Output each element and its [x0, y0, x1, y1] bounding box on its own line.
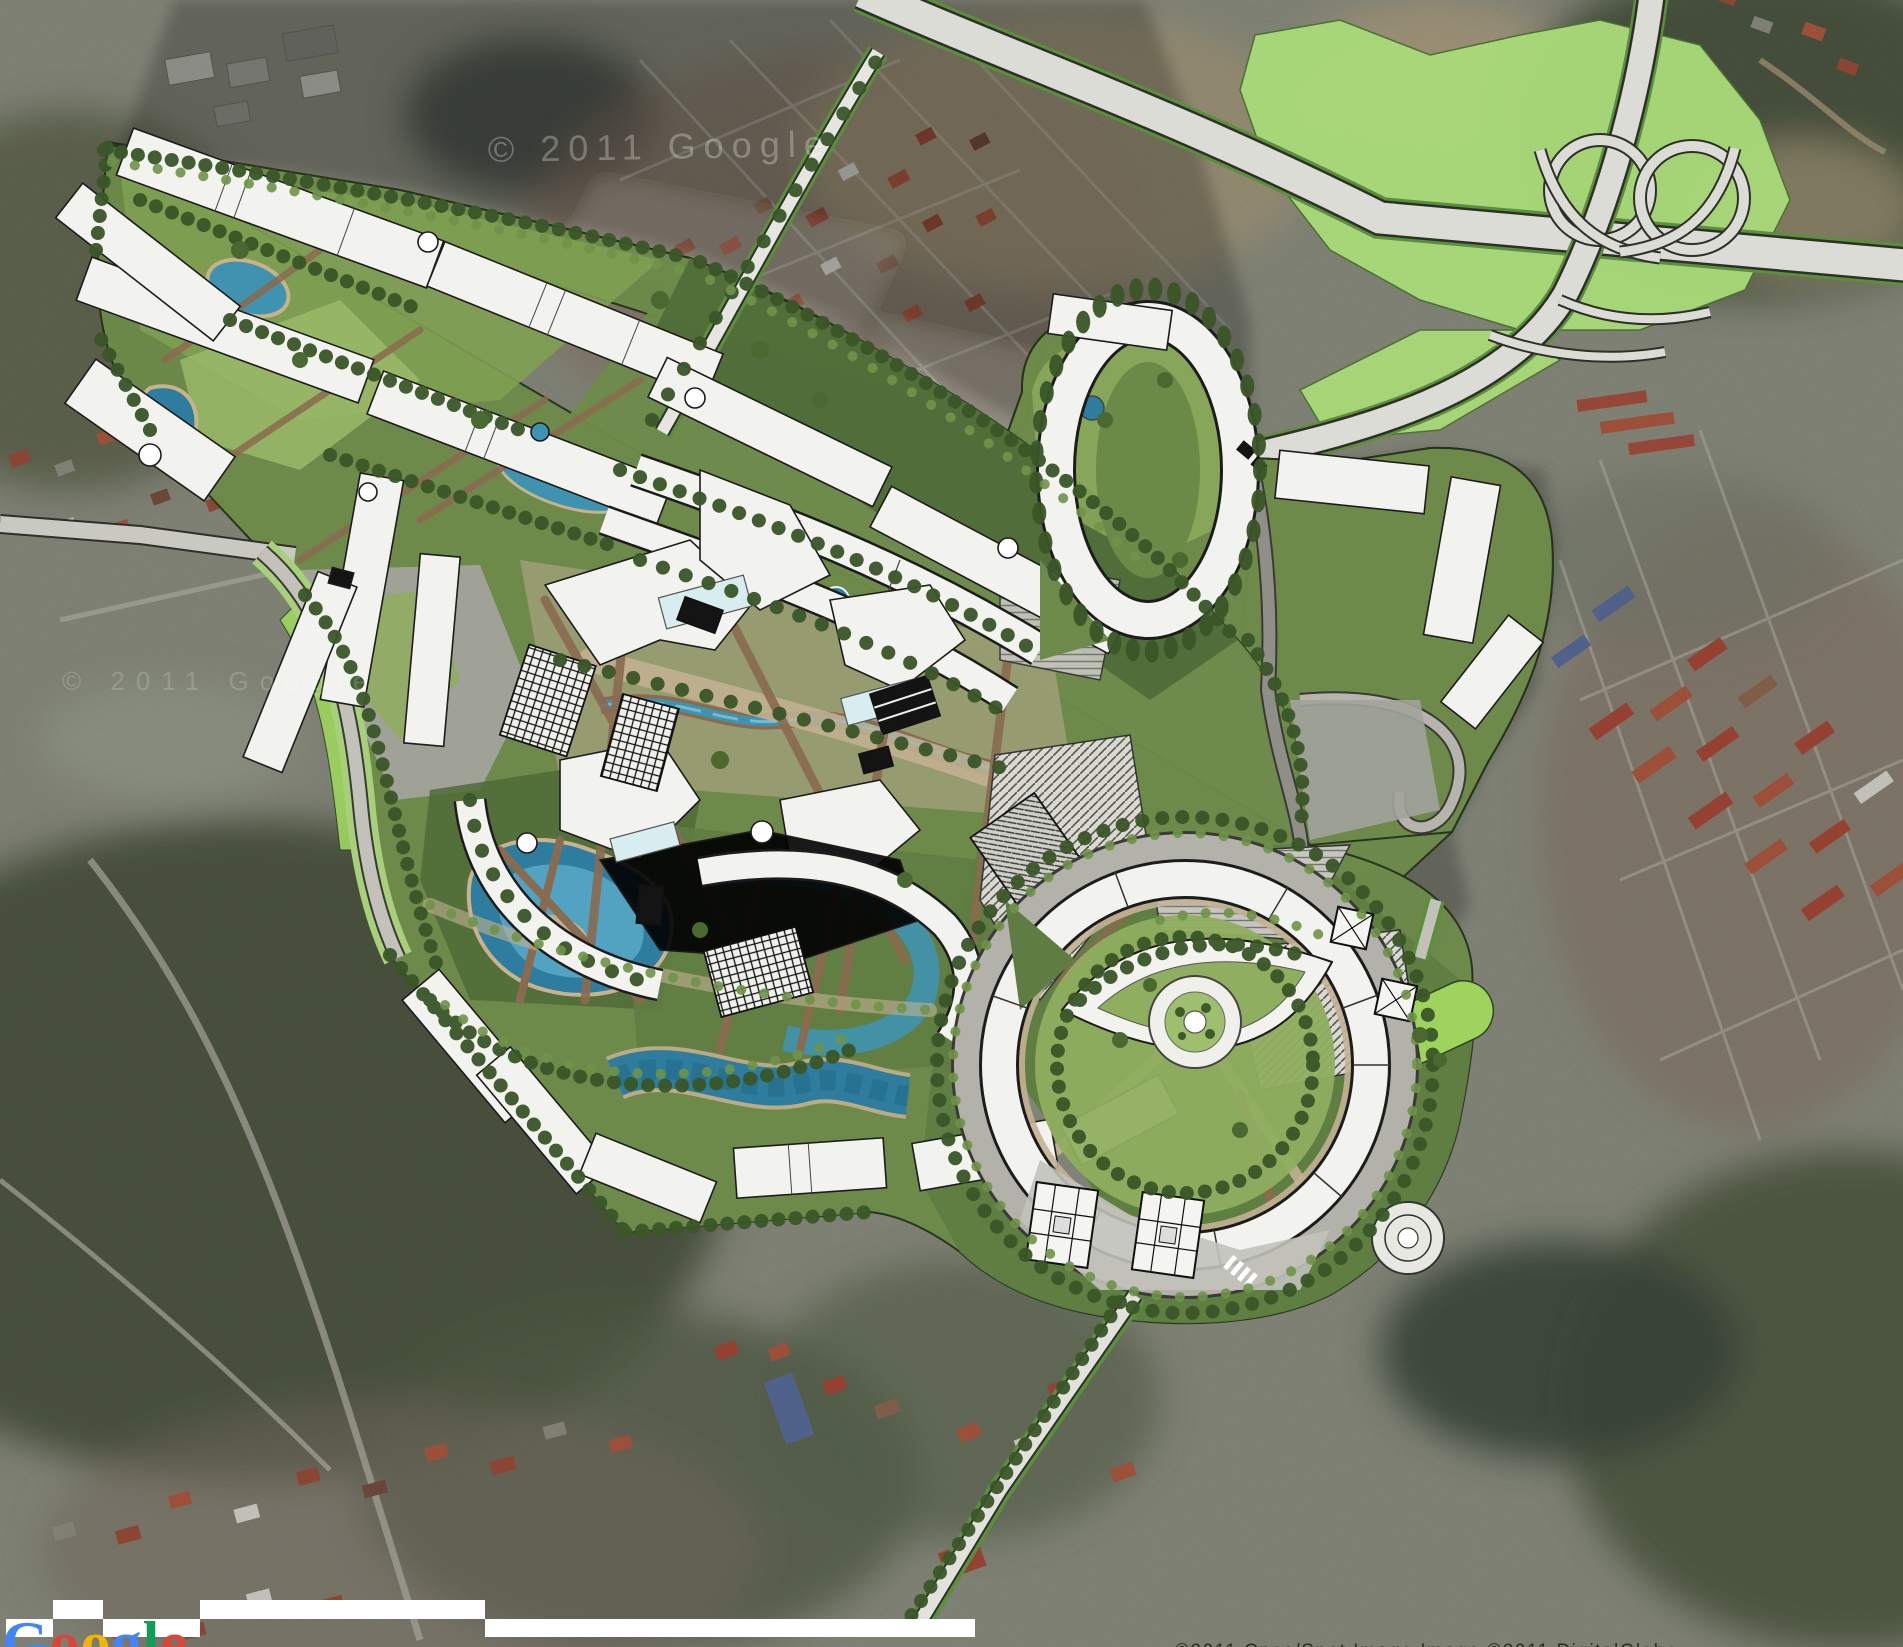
satellite-masterplan-svg: © 2011 Google © 2011 Google ©2011 Cnes/S… [0, 0, 1903, 1647]
watermark-left: © 2011 Google [62, 666, 378, 696]
map-canvas[interactable]: © 2011 Google © 2011 Google ©2011 Cnes/S… [0, 0, 1903, 1647]
logo-letter: G [2, 1610, 50, 1647]
google-logo: Google [2, 1610, 188, 1647]
logo-letter: g [112, 1610, 143, 1647]
logo-letter: e [160, 1610, 188, 1647]
watermark-center: © 2011 Google [487, 123, 832, 170]
attribution-text: ©2011 Cnes/Spot Image Image ©2011 Digita… [1175, 1641, 1678, 1647]
logo-letter: l [143, 1610, 161, 1647]
logo-letter: o [81, 1610, 112, 1647]
logo-letter: o [50, 1610, 81, 1647]
